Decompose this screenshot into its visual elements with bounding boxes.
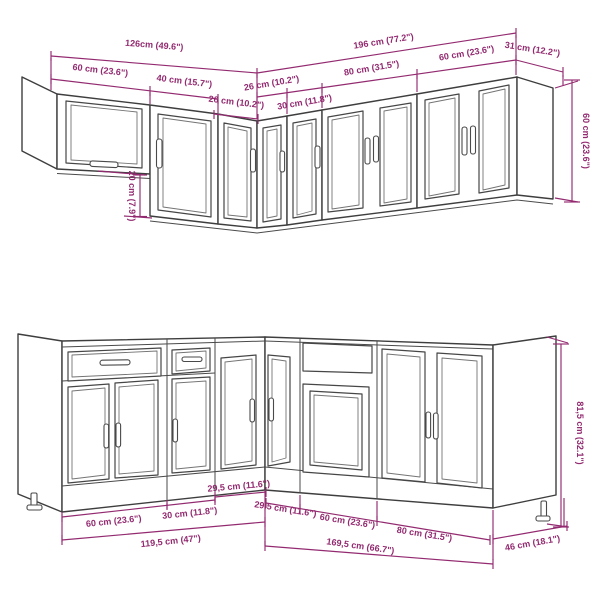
- diagram-canvas: 126cm (49.6") 196 cm (77.2") 60 cm (23.6…: [0, 0, 600, 600]
- wall-cab-40-handle: [157, 139, 163, 168]
- dim-base-cab-60-right: 60 cm (23.6"): [319, 512, 376, 531]
- dim-wall-cab-30: 30 cm (11.8"): [276, 93, 332, 112]
- base-corner-left-handle: [250, 399, 255, 422]
- wall-cab-60-right-handle-left: [462, 127, 467, 155]
- base-right-side-panel: [493, 336, 556, 508]
- dim-base-height: 81,5 cm (32.1"): [575, 401, 585, 464]
- wall-return-side-panel: [517, 77, 553, 199]
- base-cab-60-left-door-right: [115, 380, 158, 478]
- base-cab-80-handle-left: [426, 412, 431, 438]
- dim-wall-cab-40: 40 cm (15.7"): [156, 73, 213, 90]
- wall-cab-80-handle-left: [365, 138, 370, 164]
- base-cab-60-left-handle-b: [116, 423, 121, 447]
- wall-cab-30-door: [293, 119, 316, 218]
- dim-base-total-right: 169,5 cm (66.7"): [326, 536, 395, 555]
- base-cab-60-right-top-panel: [303, 343, 372, 373]
- dim-wall-total-left: 126cm (49.6"): [125, 38, 184, 53]
- base-cabinet-row-drawing: [18, 334, 556, 521]
- base-left-leg-foot: [27, 505, 42, 510]
- wall-cab-26-right-handle: [280, 151, 285, 172]
- base-right-leg-foot: [536, 516, 550, 521]
- dim-wall-cab-26-right: 26 cm (10.2"): [243, 74, 300, 93]
- base-cab-80-door-right: [437, 353, 482, 488]
- base-cab-80-handle-right: [434, 413, 439, 439]
- dim-wall-return-depth: 31 cm (12.2"): [504, 40, 561, 59]
- wall-cab-40-door: [158, 114, 211, 217]
- dim-wall-cab-80: 80 cm (31.5"): [343, 59, 400, 78]
- base-cab-30-handle: [173, 419, 178, 442]
- base-cab-60-right-door-panel-outer: [310, 391, 362, 470]
- wall-cab-60-left-handle: [90, 161, 118, 168]
- dim-wall-cab-60-right: 60 cm (23.6"): [438, 44, 495, 63]
- wall-cab-60-right-door-right: [479, 85, 509, 193]
- dim-base-cab-80: 80 cm (31.5"): [396, 525, 453, 544]
- base-left-side-panel: [18, 334, 62, 512]
- dim-wall-height: 60 cm (23.6"): [581, 113, 591, 169]
- dim-base-cab-60-left: 60 cm (23.6"): [85, 513, 142, 529]
- dim-wall-height-offset: 20 cm (7.9"): [127, 171, 137, 222]
- dim-wall-total-right: 196 cm (77.2"): [353, 31, 415, 50]
- base-cab-60-left-drawer-handle: [100, 360, 130, 366]
- wall-cab-80-handle-right: [374, 136, 379, 162]
- base-cab-60-left-door-left: [68, 384, 109, 483]
- wall-cab-30-handle: [315, 146, 320, 168]
- wall-cab-60-right-handle-right: [471, 126, 476, 154]
- dim-wall-cab-26-left: 26 cm (10.2"): [208, 94, 265, 111]
- base-left-leg: [31, 493, 37, 506]
- base-cab-30-drawer-handle: [182, 357, 202, 362]
- dim-wall-cab-60-left: 60 cm (23.6"): [72, 62, 129, 78]
- dim-base-depth: 46 cm (18.1"): [504, 533, 561, 553]
- dim-base-corner-right: 29,5 cm (11.6"): [254, 499, 318, 519]
- wall-cab-80-door-right: [380, 103, 411, 206]
- wall-cab-80-door-left: [328, 111, 363, 212]
- base-cab-60-left-handle-a: [104, 424, 109, 448]
- wall-cab-26-right-door: [263, 125, 281, 222]
- cabinet-dimension-drawing: 126cm (49.6") 196 cm (77.2") 60 cm (23.6…: [0, 0, 600, 600]
- wall-cab-26-left-handle: [251, 149, 256, 172]
- dim-base-total-left: 119,5 cm (47"): [140, 533, 201, 549]
- base-corner-right-handle: [269, 398, 274, 421]
- dim-base-cab-30: 30 cm (11.8"): [162, 505, 218, 521]
- wall-cab-60-left-side: [22, 77, 57, 169]
- base-cab-80-door-left: [382, 349, 425, 482]
- wall-cab-60-right-door-left: [425, 94, 459, 199]
